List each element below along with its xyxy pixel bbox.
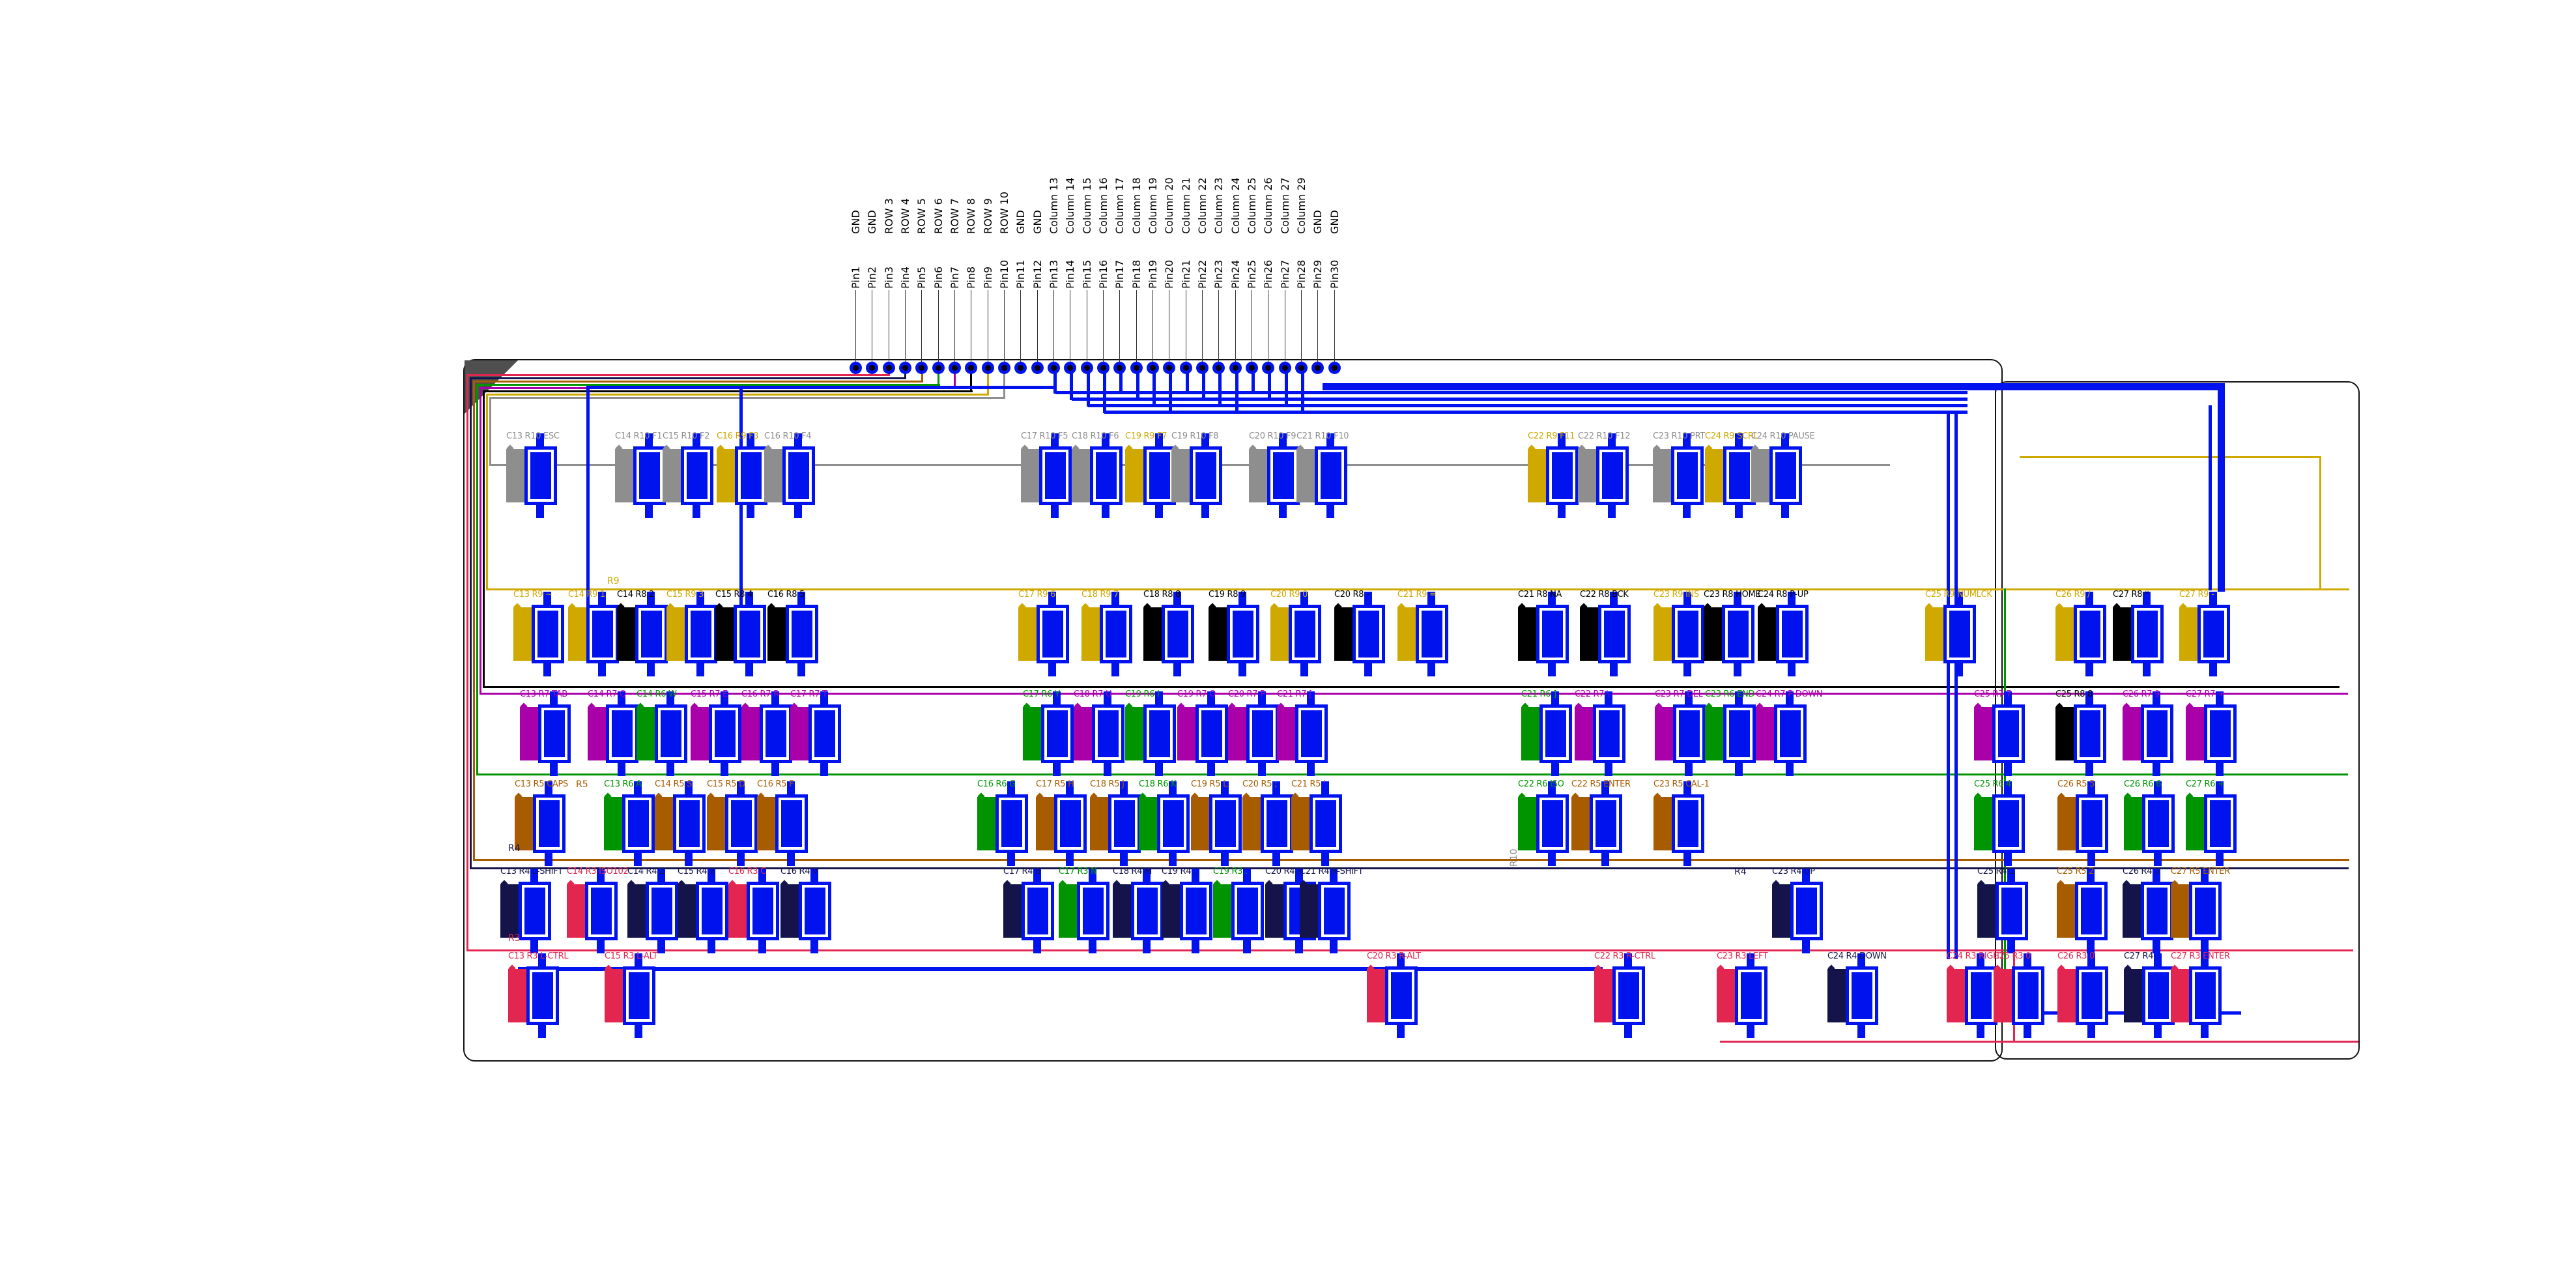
pin-leader-line [1103,290,1104,366]
key-label: C27 R5 ENTER [2171,867,2230,876]
pin-leader-line [954,290,955,366]
key-label: C23 R3 LEFT [1717,951,1768,961]
pin-pad [850,362,862,374]
pin-label: Pin13Column 13 [1048,177,1060,289]
pin: Pin21Column 21 [1186,289,1186,289]
key-label: C14 R6 W [637,689,677,699]
key-label: C26 R3 0 [2057,951,2095,961]
pin-number: Pin10 [998,234,1010,289]
pin-net: Column 21 [1180,177,1192,234]
key-switch: C26 R3 0 [2057,951,2129,1031]
key-label: C19 R3 . [1213,867,1248,876]
key-label: C16 R6 G [977,779,1016,789]
pin-net: Column 14 [1064,177,1076,234]
switch-footprint [519,882,551,940]
switch-footprint [533,794,565,853]
switch-footprint [1416,605,1448,663]
key-switch: C13 R7 TAB [520,689,592,769]
switch-footprint [1996,882,2028,940]
pin-net: Column 17 [1113,177,1126,234]
switch-footprint [538,704,571,763]
key-label: C21 R7 [ [1277,689,1312,699]
pin-pad [1130,362,1143,374]
net-line [486,394,989,396]
pin-label: Pin6ROW 6 [932,198,945,289]
switch-footprint [2012,966,2044,1025]
pin-net: ROW 10 [998,192,1010,234]
switch-footprint [1162,605,1194,663]
net-line [489,397,1005,399]
key-switch: C13 R10 ESC [506,431,578,511]
key-switch: C22 R8 BCK [1580,590,1652,669]
pin-pad [1262,362,1274,374]
switch-footprint [1100,605,1132,663]
pin-number: Pin29 [1311,234,1324,289]
pin-number: Pin5 [915,234,928,289]
key-label: C17 R3 N [1059,867,1097,876]
key-label: C19 R6 I [1125,689,1160,699]
pin-net: ROW 4 [899,198,911,234]
key-switch: C24 R8 P-UP [1758,590,1829,669]
pin-leader-line [988,290,988,366]
switch-footprint [1209,794,1242,853]
key-label: C16 R4 V [780,867,818,876]
net-line [473,859,2349,861]
pin-number: Pin15 [1081,234,1093,289]
switch-footprint [524,446,557,505]
switch-footprint [775,794,808,853]
net-line [476,774,2348,775]
switch-footprint [2075,882,2108,940]
key-label: C20 R8 - [1334,590,1369,600]
key-label: C16 R10 F4 [764,431,811,441]
pin-net: GND [866,210,878,234]
pin-number: Pin30 [1328,234,1341,289]
switch-footprint [1190,446,1222,505]
pin-net: Column 20 [1163,177,1175,234]
pin: Pin6ROW 6 [938,289,939,289]
key-switch: C21 R10 F10 [1296,431,1368,511]
switch-footprint [1539,704,1572,763]
switch-footprint [1546,446,1579,505]
pin: Pin14Column 14 [1070,289,1070,289]
pin: Pin4ROW 4 [905,289,906,289]
pin-net: ROW 3 [883,198,895,234]
net-line [466,374,468,951]
trace-segment [1070,371,1073,400]
key-label: C24 R10 PAUSE [1751,431,1814,441]
key-switch: C26 R6 6 [2124,779,2196,859]
pin-net: GND [850,210,862,234]
pin-net: GND [1014,210,1027,234]
pin-label: Pin12GND [1031,210,1044,289]
pin-pad [1196,362,1209,374]
net-name-label: R3 [508,933,521,944]
pin-label: Pin8ROW 8 [965,198,977,289]
pin-label: Pin10ROW 10 [998,192,1010,289]
key-switch: C16 R10 F4 [764,431,836,511]
pin-number: Pin2 [866,234,878,289]
trace-segment [518,967,1603,971]
key-label: C22 R8 BCK [1580,590,1628,600]
pin: Pin25Column 25 [1252,289,1252,289]
switch-footprint [2141,704,2173,763]
net-line [483,390,485,687]
switch-footprint [1054,794,1087,853]
pin: Pin3ROW 3 [889,289,889,289]
pin-pad [883,362,895,374]
key-label: C21 R5 ' [1291,779,1325,789]
pin-net: GND [1328,210,1341,234]
switch-footprint [1769,446,1802,505]
switch-footprint [747,882,779,940]
pin-net: Column 27 [1279,177,1291,234]
key-label: C14 R5 S [655,779,692,789]
key-switch: C20 R9 0 [1270,590,1342,669]
net-line [2319,456,2321,590]
key-label: C15 R5 D [707,779,745,789]
pin-number: Pin3 [883,234,895,289]
pin-number: Pin17 [1113,234,1126,289]
switch-footprint [2204,704,2237,763]
key-switch: C21 R7 [ [1277,689,1349,769]
pin-label: Pin16Column 16 [1097,177,1109,289]
pin-label: Pin21Column 21 [1180,177,1192,289]
net-line [2020,456,2321,458]
switch-footprint [1612,966,1645,1025]
key-label: C20 R5 ; [1242,779,1277,789]
key-label: C27 R9 - [2179,590,2214,600]
switch-footprint [1267,446,1300,505]
pin-leader-line [1087,290,1087,366]
switch-footprint [1846,966,1878,1025]
key-switch: C25 R5 2 [2057,867,2128,946]
pin-leader-line [1317,290,1318,366]
pin-net: Column 29 [1295,177,1308,234]
key-switch: C13 R5 CAPS [515,779,586,859]
key-label: C18 R6 K [1139,779,1176,789]
pin-leader-line [1004,290,1005,366]
pin-leader-line [1301,290,1302,366]
trace-segment [1301,371,1304,413]
key-switch: C24 R7 P-DOWN [1756,689,1827,769]
pin-label: Pin26Column 26 [1262,177,1274,289]
key-label: C19 R5 L [1191,779,1227,789]
switch-footprint [1227,605,1259,663]
pin-net: Column 18 [1130,177,1143,234]
net-line [483,390,973,392]
pin-leader-line [855,290,856,366]
pin-net: ROW 5 [915,198,928,234]
key-label: C23 R9 INS [1653,590,1699,600]
pin-label: Pin25Column 25 [1246,177,1258,289]
switch-footprint [1289,605,1321,663]
switch-footprint [2197,605,2230,663]
key-label: C26 R5 5 [2057,779,2095,789]
pin-label: Pin22Column 22 [1196,177,1209,289]
key-label: C13 R9 ~ [513,590,552,600]
key-label: C22 R9 F11 [1528,431,1575,441]
switch-footprint [1131,882,1164,940]
pin-leader-line [1152,290,1153,366]
pin: Pin13Column 13 [1053,289,1054,289]
switch-footprint [1790,882,1823,940]
pin-label: Pin4ROW 4 [899,198,911,289]
pin-leader-line [1053,290,1054,366]
key-label: C17 R10 F5 [1021,431,1068,441]
key-label: C17 R6 Y [1023,689,1060,699]
pin-number: Pin12 [1031,234,1044,289]
pin: Pin1GND [855,289,856,289]
key-label: C21 R10 F10 [1296,431,1349,441]
key-label: C22 R10 F12 [1578,431,1630,441]
trace-segment [1169,371,1172,413]
key-label: C19 R10 F8 [1171,431,1218,441]
trace-segment [1072,398,1968,401]
switch-footprint [673,794,706,853]
net-line [470,377,472,869]
pin-leader-line [938,290,939,366]
pin-leader-line [1252,290,1252,366]
pin: Pin24Column 24 [1235,289,1236,289]
switch-footprint [1596,446,1629,505]
key-label: C24 R9 SCRL [1705,431,1758,441]
key-label: C16 R9 F3 [717,431,758,441]
pin-pad [1097,362,1109,374]
switch-footprint [734,605,766,663]
switch-footprint [1039,446,1072,505]
key-label: C21 R4 R-SHIFT [1300,867,1363,876]
key-label: C19 R7 O [1177,689,1216,699]
trace-segment [1268,371,1271,400]
switch-footprint [1261,794,1293,853]
key-label: C18 R4 M [1113,867,1152,876]
key-label: C19 R9 F7 [1125,431,1167,441]
key-label: C14 R7 Q [588,689,626,699]
pin: Pin20Column 20 [1169,289,1169,289]
switch-footprint [786,605,818,663]
switch-footprint [1965,966,1997,1025]
key-label: C13 R10 ESC [506,431,560,441]
pin-pad [1163,362,1175,374]
key-switch: C27 R9 - [2179,590,2251,669]
trace-segment [1954,412,1958,959]
key-label: C20 R10 F9 [1249,431,1296,441]
key-label: C23 R7 DEL [1655,689,1703,699]
pin-pad [1048,362,1060,374]
switch-footprint [1536,605,1569,663]
key-label: C18 R10 F6 [1072,431,1119,441]
pin-pad [866,362,878,374]
pin-net: GND [1031,210,1044,234]
pin-pad [998,362,1010,374]
switch-footprint [1246,704,1279,763]
pin-leader-line [1070,290,1070,366]
net-line [486,394,488,590]
pin-pad [1279,362,1291,374]
key-switch: C25 R3 0 [1994,951,2065,1031]
switch-footprint [1672,605,1704,663]
key-label: C27 R7 + [2186,689,2225,699]
pin: Pin28Column 29 [1301,289,1302,289]
trace-segment [1235,371,1238,413]
net-name-label: R10 [1509,848,1519,867]
key-label: C22 R6 ISO [1518,779,1564,789]
pin: Pin11GND [1020,289,1021,289]
key-label: C13 R6 A [604,779,642,789]
switch-footprint [696,882,728,940]
pin-label: Pin2GND [866,210,878,289]
trace-segment [1136,371,1139,400]
switch-footprint [1774,704,1807,763]
key-label: C25 R8 8 [2055,689,2093,699]
switch-footprint [586,605,619,663]
pin-net: ROW 7 [949,198,961,234]
key-switch: C24 R10 PAUSE [1751,431,1823,511]
key-label: C21 R6 ] [1521,689,1556,699]
switch-footprint [1385,966,1418,1025]
trace-segment [586,386,590,613]
pin: Pin30GND [1334,289,1335,289]
switch-footprint [1722,605,1754,663]
pin-pad [1064,362,1076,374]
pin: Pin7ROW 7 [954,289,955,289]
key-label: C15 R7 E [691,689,728,699]
pin: Pin16Column 16 [1103,289,1104,289]
pin-net: GND [1311,210,1324,234]
key-label: C25 R5 2 [2057,867,2094,876]
key-switch: C20 R3 R-ALT [1367,951,1438,1031]
switch-footprint [2076,966,2108,1025]
key-switch: C26 R7 9 [2123,689,2194,769]
pin-pad [915,362,928,374]
key-label: C14 R3 ISO102 [567,867,628,876]
switch-footprint [1671,446,1704,505]
trace-segment [1152,371,1156,407]
switch-footprint [1735,966,1767,1025]
trace-segment [1947,412,1950,959]
pin-pad [1295,362,1308,374]
key-switch: C21 R5 ' [1291,779,1363,859]
key-label: C27 R8 * [2113,590,2149,600]
key-label: C14 R8 2 [617,590,654,600]
pin-label: Pin18Column 18 [1130,177,1143,289]
pin: Pin27Column 27 [1285,289,1285,289]
switch-footprint [622,794,655,853]
pin-number: Pin11 [1014,234,1027,289]
pin-number: Pin20 [1163,234,1175,289]
pin: Pin10ROW 10 [1004,289,1005,289]
key-label: C25 R9 NUMLCK [1925,590,1992,600]
net-line [473,381,923,383]
pin-pad [1311,362,1324,374]
key-switch: C27 R7 + [2186,689,2257,769]
key-label: C25 R3 0 [1994,951,2031,961]
pin-leader-line [1186,290,1186,366]
pin-number: Pin8 [965,234,977,289]
key-label: C27 R3 ENTER [2171,951,2230,961]
pin-number: Pin25 [1246,234,1258,289]
key-switch: C13 R3 L-CTRL [508,951,580,1031]
key-label: C26 R7 9 [2123,689,2160,699]
pin-number: Pin22 [1196,234,1209,289]
pin: Pin15Column 15 [1087,289,1087,289]
key-label: C18 R7 U [1074,689,1111,699]
key-label: C24 R8 P-UP [1758,590,1809,600]
key-label: C26 R9 / [2055,590,2090,600]
key-label: C18 R8 8 [1143,590,1181,600]
pin-net: ROW 8 [965,198,977,234]
pin-label: Pin23Column 23 [1212,177,1225,289]
key-switch: C21 R9 = [1397,590,1469,669]
net-line [1720,1041,2358,1043]
switch-footprint [809,704,841,763]
pin-pad [965,362,977,374]
pin-leader-line [921,290,922,366]
switch-footprint [1295,704,1328,763]
switch-footprint [1090,446,1123,505]
key-label: C15 R8 4 [715,590,752,600]
pin-leader-line [1037,290,1038,366]
key-label: C19 R4 , [1162,867,1196,876]
switch-footprint [1180,882,1212,940]
switch-footprint [1092,704,1124,763]
key-label: C27 R6 + [2186,779,2225,789]
pin-leader-line [1218,290,1219,366]
key-label: C14 R10 F1 [615,431,662,441]
key-label: C13 R5 CAPS [515,779,568,789]
pin-label: Pin27Column 27 [1279,177,1291,289]
switch-footprint [2131,605,2164,663]
key-switch: C22 R5 ENTER [1571,779,1643,859]
trace-segment [1323,383,2225,390]
switch-footprint [1593,704,1625,763]
key-label: C24 R7 P-DOWN [1756,689,1822,699]
key-switch: C16 R5 F [757,779,829,859]
switch-footprint [725,794,758,853]
trace-segment [1055,391,1968,394]
key-label: C17 R9 6 [1018,590,1055,600]
key-switch: C15 R3 L-ALT [605,951,676,1031]
pin-number: Pin18 [1130,234,1143,289]
pin: Pin12GND [1037,289,1038,289]
key-switch: C25 R9 NUMLCK [1925,590,1997,669]
switch-footprint [646,882,678,940]
pin: Pin2GND [872,289,872,289]
key-switch: C25 R4 1 [1977,867,2049,946]
key-switch: C23 R5 CAL-1 [1653,779,1725,859]
switch-footprint [1992,704,2025,763]
key-switch: C16 R4 V [780,867,852,946]
trace-segment [2218,383,2225,592]
switch-footprint [782,446,815,505]
key-label: C23 R6 END [1705,689,1754,699]
net-line [473,381,475,861]
switch-footprint [1536,794,1569,853]
net-line [483,686,2340,688]
switch-footprint [735,446,767,505]
key-label: C15 R10 F2 [663,431,709,441]
switch-footprint [1723,704,1756,763]
key-switch: C25 R6 4 [1974,779,2046,859]
pin-number: Pin6 [932,234,945,289]
key-switch: C21 R8 NA [1518,590,1590,669]
pin-number: Pin4 [899,234,911,289]
pin: Pin19Column 19 [1152,289,1153,289]
pin-net: Column 25 [1246,177,1258,234]
pin-label: Pin5ROW 5 [915,198,928,289]
key-label: C25 R4 1 [1977,867,2014,876]
